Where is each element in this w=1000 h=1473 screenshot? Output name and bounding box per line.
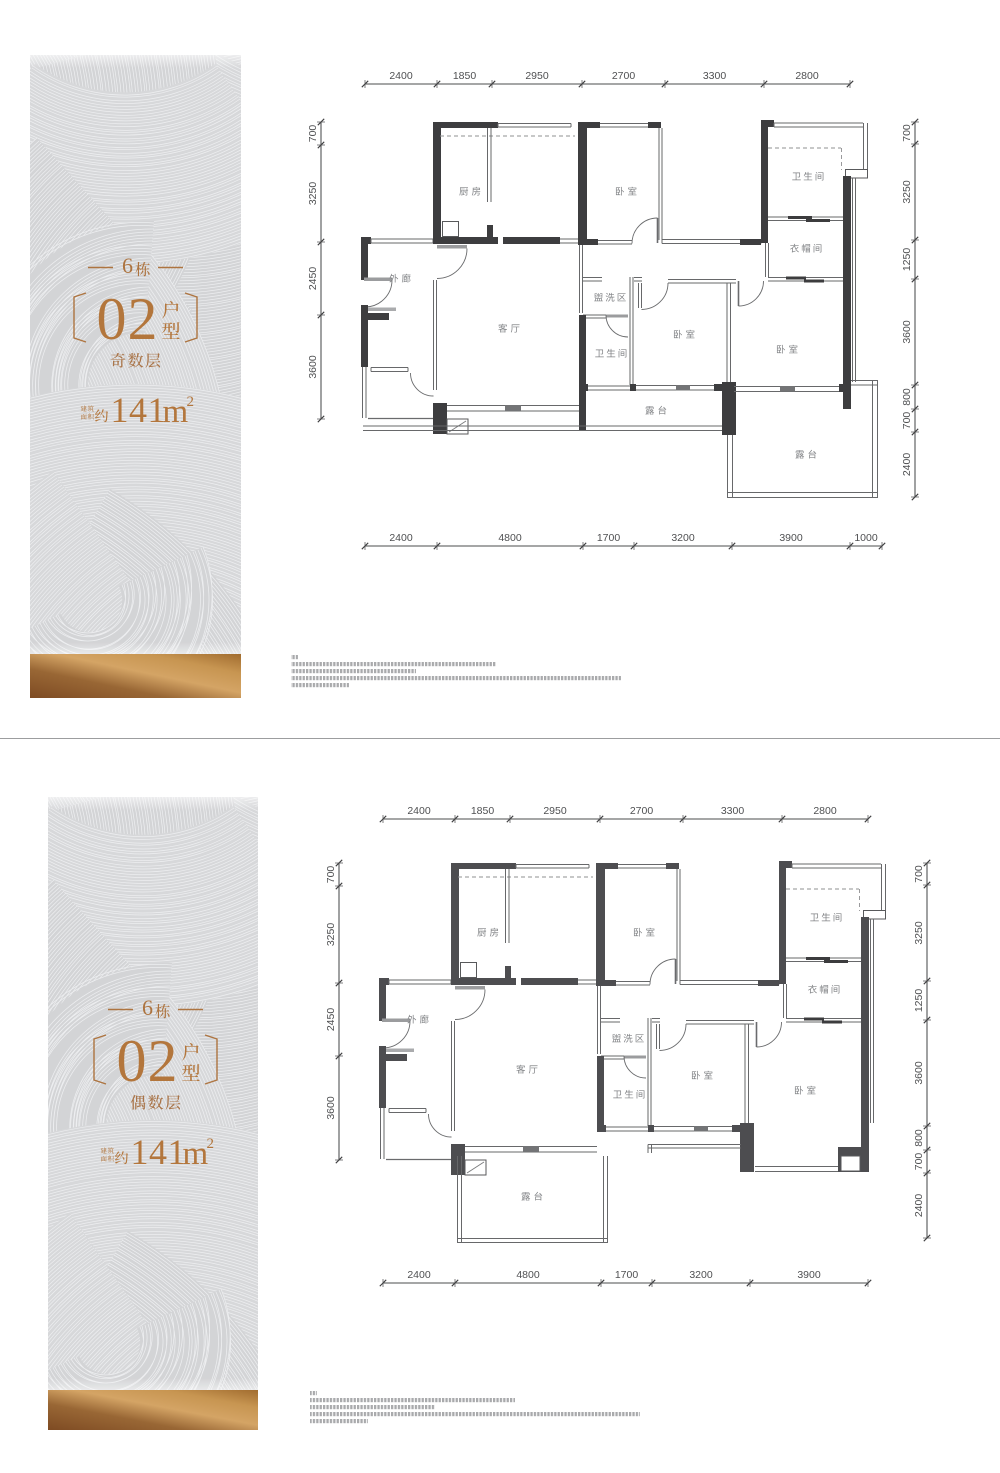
svg-text:1250: 1250: [901, 248, 913, 272]
svg-text:700: 700: [901, 412, 913, 430]
svg-text:3250: 3250: [901, 180, 913, 204]
svg-text:6: 6: [142, 995, 153, 1020]
svg-text:2800: 2800: [795, 70, 819, 82]
svg-text:1700: 1700: [597, 532, 621, 544]
svg-text:141: 141: [131, 1132, 187, 1172]
svg-text:3600: 3600: [913, 1061, 925, 1085]
svg-text:2950: 2950: [525, 70, 549, 82]
svg-text:3200: 3200: [671, 532, 695, 544]
svg-text:2700: 2700: [630, 805, 654, 817]
svg-text:3900: 3900: [797, 1269, 821, 1281]
svg-text:141: 141: [111, 390, 167, 430]
svg-text:3600: 3600: [325, 1096, 337, 1120]
svg-text:3250: 3250: [325, 923, 337, 947]
svg-text:700: 700: [307, 125, 319, 143]
svg-text:m: m: [163, 394, 189, 430]
svg-text:700: 700: [325, 866, 337, 884]
svg-text:3300: 3300: [721, 805, 745, 817]
svg-text:1850: 1850: [453, 70, 477, 82]
svg-text:2: 2: [187, 394, 195, 410]
svg-text:3900: 3900: [779, 532, 803, 544]
svg-text:4800: 4800: [498, 532, 522, 544]
svg-text:02: 02: [97, 286, 159, 352]
svg-text:3250: 3250: [913, 921, 925, 945]
svg-text:3200: 3200: [689, 1269, 713, 1281]
svg-text:2: 2: [207, 1136, 215, 1152]
svg-text:700: 700: [913, 865, 925, 883]
svg-text:02: 02: [117, 1028, 179, 1094]
svg-text:1850: 1850: [471, 805, 495, 817]
svg-text:2800: 2800: [813, 805, 837, 817]
svg-text:3250: 3250: [307, 182, 319, 206]
svg-text:2700: 2700: [612, 70, 636, 82]
svg-text:2450: 2450: [307, 267, 319, 291]
svg-text:800: 800: [913, 1129, 925, 1147]
svg-text:4800: 4800: [516, 1269, 540, 1281]
svg-text:2400: 2400: [389, 532, 413, 544]
svg-text:1250: 1250: [913, 989, 925, 1013]
svg-text:2400: 2400: [407, 1269, 431, 1281]
svg-text:2400: 2400: [407, 805, 431, 817]
svg-text:3600: 3600: [307, 355, 319, 379]
svg-text:2950: 2950: [543, 805, 567, 817]
svg-text:2400: 2400: [901, 453, 913, 477]
svg-text:1000: 1000: [854, 532, 878, 544]
svg-text:3300: 3300: [703, 70, 727, 82]
svg-text:700: 700: [901, 124, 913, 142]
svg-text:3600: 3600: [901, 320, 913, 344]
svg-text:6: 6: [122, 253, 133, 278]
svg-text:700: 700: [913, 1153, 925, 1171]
svg-text:2450: 2450: [325, 1008, 337, 1032]
svg-text:m: m: [183, 1136, 209, 1172]
svg-text:2400: 2400: [389, 70, 413, 82]
svg-text:2400: 2400: [913, 1194, 925, 1218]
svg-text:1700: 1700: [615, 1269, 639, 1281]
svg-text:800: 800: [901, 388, 913, 406]
